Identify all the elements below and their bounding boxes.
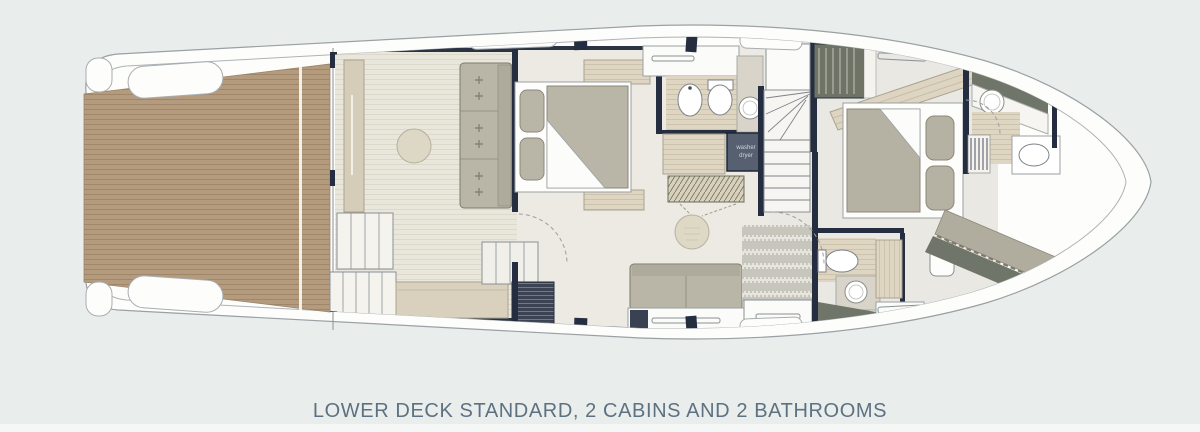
bottom-band	[0, 424, 1200, 432]
toilet2-cistern	[818, 250, 826, 272]
bathroom2-side-cabinet	[876, 240, 902, 298]
pillow	[926, 166, 954, 210]
yacht-floorplan-page: washer dryer	[0, 0, 1200, 432]
washer-label-2: dryer	[739, 153, 753, 159]
side-deck-pod-top	[127, 61, 224, 100]
pillow	[520, 90, 544, 132]
hanging-clothes	[742, 225, 812, 301]
stairs-left-wall	[758, 86, 764, 216]
stern-corner-pod-top	[86, 58, 112, 92]
toilet2	[826, 250, 858, 272]
bathroom2-left-wall	[812, 152, 818, 332]
midship-sofa	[630, 264, 742, 310]
lower-deck-floorplan: washer dryer	[0, 0, 1200, 432]
midship-bed	[515, 60, 650, 210]
stairs-landing	[766, 44, 810, 90]
small-dark-locker	[630, 310, 648, 330]
salon-sideboard-bottom	[396, 282, 508, 318]
salon-round-table	[397, 129, 431, 163]
salon-sofa	[460, 63, 512, 208]
washer-label-1: washer	[735, 145, 755, 151]
hanging-locker-top	[814, 44, 876, 98]
wardrobe	[668, 176, 744, 202]
salon-sideboard-left	[344, 60, 364, 212]
bow-bed	[843, 103, 963, 218]
teak-deck	[84, 64, 330, 312]
toilet	[708, 85, 732, 115]
plan-caption: LOWER DECK STANDARD, 2 CABINS AND 2 BATH…	[0, 396, 1200, 426]
stairs-flight	[764, 90, 810, 212]
bow-toilet	[1019, 144, 1049, 166]
side-deck-pod-bottom	[127, 275, 224, 314]
bow-locker	[968, 135, 990, 173]
salon-cabin-wall-lower	[512, 262, 518, 324]
bathroom1-cabinet	[663, 134, 725, 174]
round-washbasin-2	[845, 281, 867, 303]
bathroom2-top-wall	[812, 228, 904, 233]
teak-seam	[299, 66, 302, 312]
stern-corner-pod-bottom	[86, 282, 112, 316]
staircase	[758, 42, 817, 216]
pillow	[520, 138, 544, 180]
bow-washbasin	[980, 90, 1004, 114]
pouf	[675, 215, 709, 249]
pillow	[926, 116, 954, 160]
interior: washer dryer	[330, 28, 1060, 342]
round-washbasin	[739, 97, 761, 119]
